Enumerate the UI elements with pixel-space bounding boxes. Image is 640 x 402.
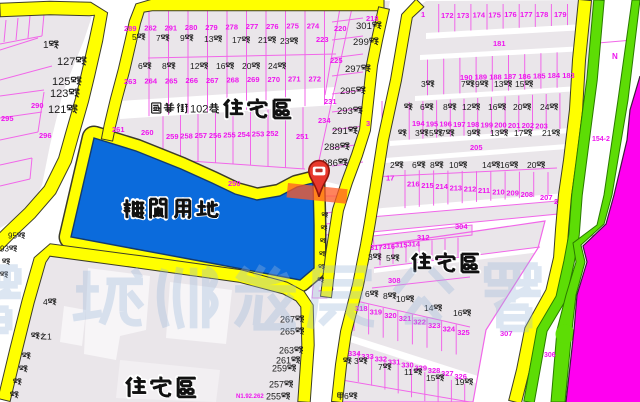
svg-text:21: 21 bbox=[258, 35, 268, 45]
svg-text:209: 209 bbox=[506, 189, 519, 198]
svg-text:3: 3 bbox=[415, 128, 420, 138]
svg-text:1: 1 bbox=[47, 332, 52, 342]
svg-text:194: 194 bbox=[412, 119, 425, 128]
svg-text:270: 270 bbox=[268, 75, 281, 84]
svg-text:3: 3 bbox=[421, 79, 426, 89]
svg-text:181: 181 bbox=[493, 39, 506, 48]
svg-text:178: 178 bbox=[536, 10, 549, 19]
svg-text:256: 256 bbox=[209, 131, 222, 140]
svg-text:279: 279 bbox=[205, 23, 218, 32]
svg-text:6: 6 bbox=[365, 289, 370, 299]
svg-text:295: 295 bbox=[340, 86, 356, 97]
svg-text:258: 258 bbox=[180, 132, 193, 141]
svg-text:16: 16 bbox=[500, 160, 510, 170]
svg-text:316: 316 bbox=[383, 242, 396, 251]
svg-text:290: 290 bbox=[31, 101, 44, 110]
svg-text:299: 299 bbox=[353, 37, 369, 48]
svg-text:17: 17 bbox=[514, 128, 524, 138]
svg-text:1: 1 bbox=[421, 10, 425, 19]
svg-text:14: 14 bbox=[482, 160, 492, 170]
svg-text:9: 9 bbox=[475, 79, 480, 89]
svg-text:5: 5 bbox=[132, 32, 137, 42]
svg-text:3: 3 bbox=[366, 119, 370, 128]
svg-text:127: 127 bbox=[57, 56, 75, 68]
svg-text:257: 257 bbox=[269, 379, 284, 389]
svg-text:272: 272 bbox=[309, 74, 322, 83]
svg-text:10: 10 bbox=[396, 294, 406, 304]
svg-text:6: 6 bbox=[138, 61, 143, 71]
svg-text:11: 11 bbox=[404, 367, 413, 377]
svg-text:275: 275 bbox=[286, 22, 299, 31]
svg-text:15: 15 bbox=[426, 373, 436, 383]
svg-text:121: 121 bbox=[48, 104, 66, 116]
svg-text:261: 261 bbox=[112, 125, 125, 134]
svg-text:5: 5 bbox=[429, 128, 434, 138]
svg-text:185: 185 bbox=[533, 72, 546, 81]
svg-text:13: 13 bbox=[204, 34, 214, 44]
svg-text:17: 17 bbox=[386, 174, 394, 183]
svg-text:276: 276 bbox=[266, 22, 279, 31]
svg-text:183: 183 bbox=[562, 71, 575, 80]
svg-text:210: 210 bbox=[492, 187, 505, 196]
svg-text:6: 6 bbox=[412, 160, 417, 170]
svg-text:20: 20 bbox=[527, 160, 537, 170]
svg-text:8: 8 bbox=[443, 102, 448, 112]
svg-text:8: 8 bbox=[430, 160, 435, 170]
svg-text:223: 223 bbox=[316, 35, 329, 44]
svg-text:176: 176 bbox=[504, 10, 517, 19]
svg-text:175: 175 bbox=[488, 10, 501, 19]
svg-text:N: N bbox=[612, 52, 618, 61]
svg-text:102: 102 bbox=[190, 104, 208, 116]
svg-text:12: 12 bbox=[462, 102, 472, 112]
svg-text:278: 278 bbox=[226, 23, 239, 32]
svg-text:93: 93 bbox=[0, 245, 9, 254]
svg-text:280: 280 bbox=[185, 23, 198, 32]
svg-text:212: 212 bbox=[464, 185, 477, 194]
svg-text:234: 234 bbox=[318, 116, 331, 125]
svg-text:254: 254 bbox=[238, 130, 251, 139]
svg-text:16: 16 bbox=[488, 102, 498, 112]
svg-text:197: 197 bbox=[453, 120, 466, 129]
svg-text:216: 216 bbox=[407, 180, 420, 189]
svg-text:315: 315 bbox=[395, 241, 408, 250]
svg-text:268: 268 bbox=[227, 76, 240, 85]
svg-text:8: 8 bbox=[383, 291, 388, 301]
svg-text:205: 205 bbox=[470, 143, 483, 152]
svg-text:7: 7 bbox=[461, 79, 466, 89]
svg-text:262: 262 bbox=[144, 24, 157, 33]
svg-text:291: 291 bbox=[332, 126, 348, 137]
svg-text:172: 172 bbox=[441, 11, 454, 20]
svg-text:271: 271 bbox=[288, 75, 301, 84]
svg-text:252: 252 bbox=[266, 129, 279, 138]
svg-text:95: 95 bbox=[8, 232, 17, 241]
svg-text:9: 9 bbox=[180, 33, 185, 43]
svg-text:211: 211 bbox=[478, 186, 490, 195]
svg-text:20: 20 bbox=[242, 61, 252, 71]
svg-text:213: 213 bbox=[450, 183, 463, 192]
svg-text:215: 215 bbox=[421, 181, 434, 190]
svg-text:4: 4 bbox=[43, 297, 48, 307]
svg-text:325: 325 bbox=[457, 328, 470, 337]
svg-text:314: 314 bbox=[408, 239, 421, 248]
svg-text:260: 260 bbox=[141, 128, 154, 137]
svg-text:277: 277 bbox=[246, 22, 259, 31]
svg-text:177: 177 bbox=[520, 10, 533, 19]
svg-text:123: 123 bbox=[50, 88, 68, 100]
svg-text:202: 202 bbox=[522, 121, 535, 130]
svg-text:20: 20 bbox=[513, 102, 523, 112]
svg-text:2: 2 bbox=[390, 160, 395, 170]
svg-text:6: 6 bbox=[344, 391, 349, 401]
svg-text:259: 259 bbox=[166, 132, 179, 141]
svg-text:207: 207 bbox=[540, 193, 553, 202]
svg-text:13: 13 bbox=[490, 128, 500, 138]
svg-text:251: 251 bbox=[296, 132, 309, 141]
svg-text:179: 179 bbox=[554, 10, 567, 19]
svg-text:6: 6 bbox=[420, 102, 425, 112]
svg-text:1: 1 bbox=[43, 40, 49, 51]
svg-text:154-2: 154-2 bbox=[592, 136, 610, 143]
svg-text:250: 250 bbox=[228, 179, 241, 188]
svg-text:263: 263 bbox=[279, 345, 294, 355]
svg-text:320: 320 bbox=[384, 311, 397, 320]
svg-text:288: 288 bbox=[324, 142, 340, 153]
svg-text:257: 257 bbox=[195, 131, 208, 140]
svg-text:174: 174 bbox=[473, 11, 486, 20]
svg-text:274: 274 bbox=[307, 21, 320, 30]
svg-text:24: 24 bbox=[540, 102, 550, 112]
svg-text:8: 8 bbox=[162, 61, 167, 71]
svg-text:16: 16 bbox=[216, 61, 226, 71]
svg-text:10: 10 bbox=[449, 160, 459, 170]
svg-text:184: 184 bbox=[548, 71, 561, 80]
svg-text:7: 7 bbox=[156, 33, 161, 43]
svg-text:333: 333 bbox=[361, 352, 374, 361]
svg-text:208: 208 bbox=[521, 190, 534, 199]
svg-text:304: 304 bbox=[455, 222, 468, 231]
svg-text:255: 255 bbox=[266, 391, 281, 401]
svg-text:16: 16 bbox=[453, 308, 463, 318]
svg-text:263: 263 bbox=[124, 77, 137, 86]
svg-text:12: 12 bbox=[190, 61, 200, 71]
svg-text:291: 291 bbox=[165, 23, 178, 32]
svg-text:317: 317 bbox=[370, 243, 383, 252]
svg-text:19: 19 bbox=[455, 377, 465, 387]
svg-text:269: 269 bbox=[247, 75, 260, 84]
svg-text:214: 214 bbox=[435, 182, 448, 191]
svg-text:231: 231 bbox=[324, 97, 337, 106]
svg-text:3: 3 bbox=[368, 252, 373, 262]
svg-text:21: 21 bbox=[542, 128, 552, 138]
svg-text:319: 319 bbox=[370, 307, 383, 316]
svg-text:15: 15 bbox=[515, 79, 525, 89]
svg-text:220: 220 bbox=[334, 24, 347, 33]
svg-text:173: 173 bbox=[457, 11, 470, 20]
svg-text:125: 125 bbox=[52, 76, 70, 88]
svg-text:293: 293 bbox=[337, 106, 353, 117]
svg-text:2: 2 bbox=[554, 197, 558, 206]
svg-text:324: 324 bbox=[443, 324, 456, 333]
svg-text:267: 267 bbox=[206, 76, 219, 85]
svg-text:23: 23 bbox=[280, 36, 290, 46]
svg-text:253: 253 bbox=[252, 130, 265, 139]
svg-text:295: 295 bbox=[1, 114, 14, 123]
svg-text:259: 259 bbox=[272, 363, 287, 373]
svg-text:3: 3 bbox=[354, 356, 359, 366]
svg-text:195: 195 bbox=[426, 119, 439, 128]
svg-text:7: 7 bbox=[378, 362, 383, 372]
svg-text:297: 297 bbox=[345, 64, 361, 75]
svg-text:306: 306 bbox=[544, 352, 556, 359]
svg-text:N1.92.262: N1.92.262 bbox=[236, 394, 264, 400]
svg-text:13: 13 bbox=[494, 79, 504, 89]
svg-text:24: 24 bbox=[268, 61, 278, 71]
svg-text:9: 9 bbox=[467, 128, 472, 138]
svg-text:265: 265 bbox=[165, 76, 178, 85]
svg-text:296: 296 bbox=[39, 131, 52, 140]
svg-text:266: 266 bbox=[186, 76, 199, 85]
svg-text:5: 5 bbox=[386, 253, 391, 263]
svg-text:225: 225 bbox=[330, 56, 343, 65]
svg-text:301: 301 bbox=[356, 21, 372, 32]
svg-text:255: 255 bbox=[223, 130, 236, 139]
svg-text:7: 7 bbox=[441, 128, 446, 138]
svg-text:17: 17 bbox=[232, 35, 242, 45]
svg-text:264: 264 bbox=[145, 77, 158, 86]
